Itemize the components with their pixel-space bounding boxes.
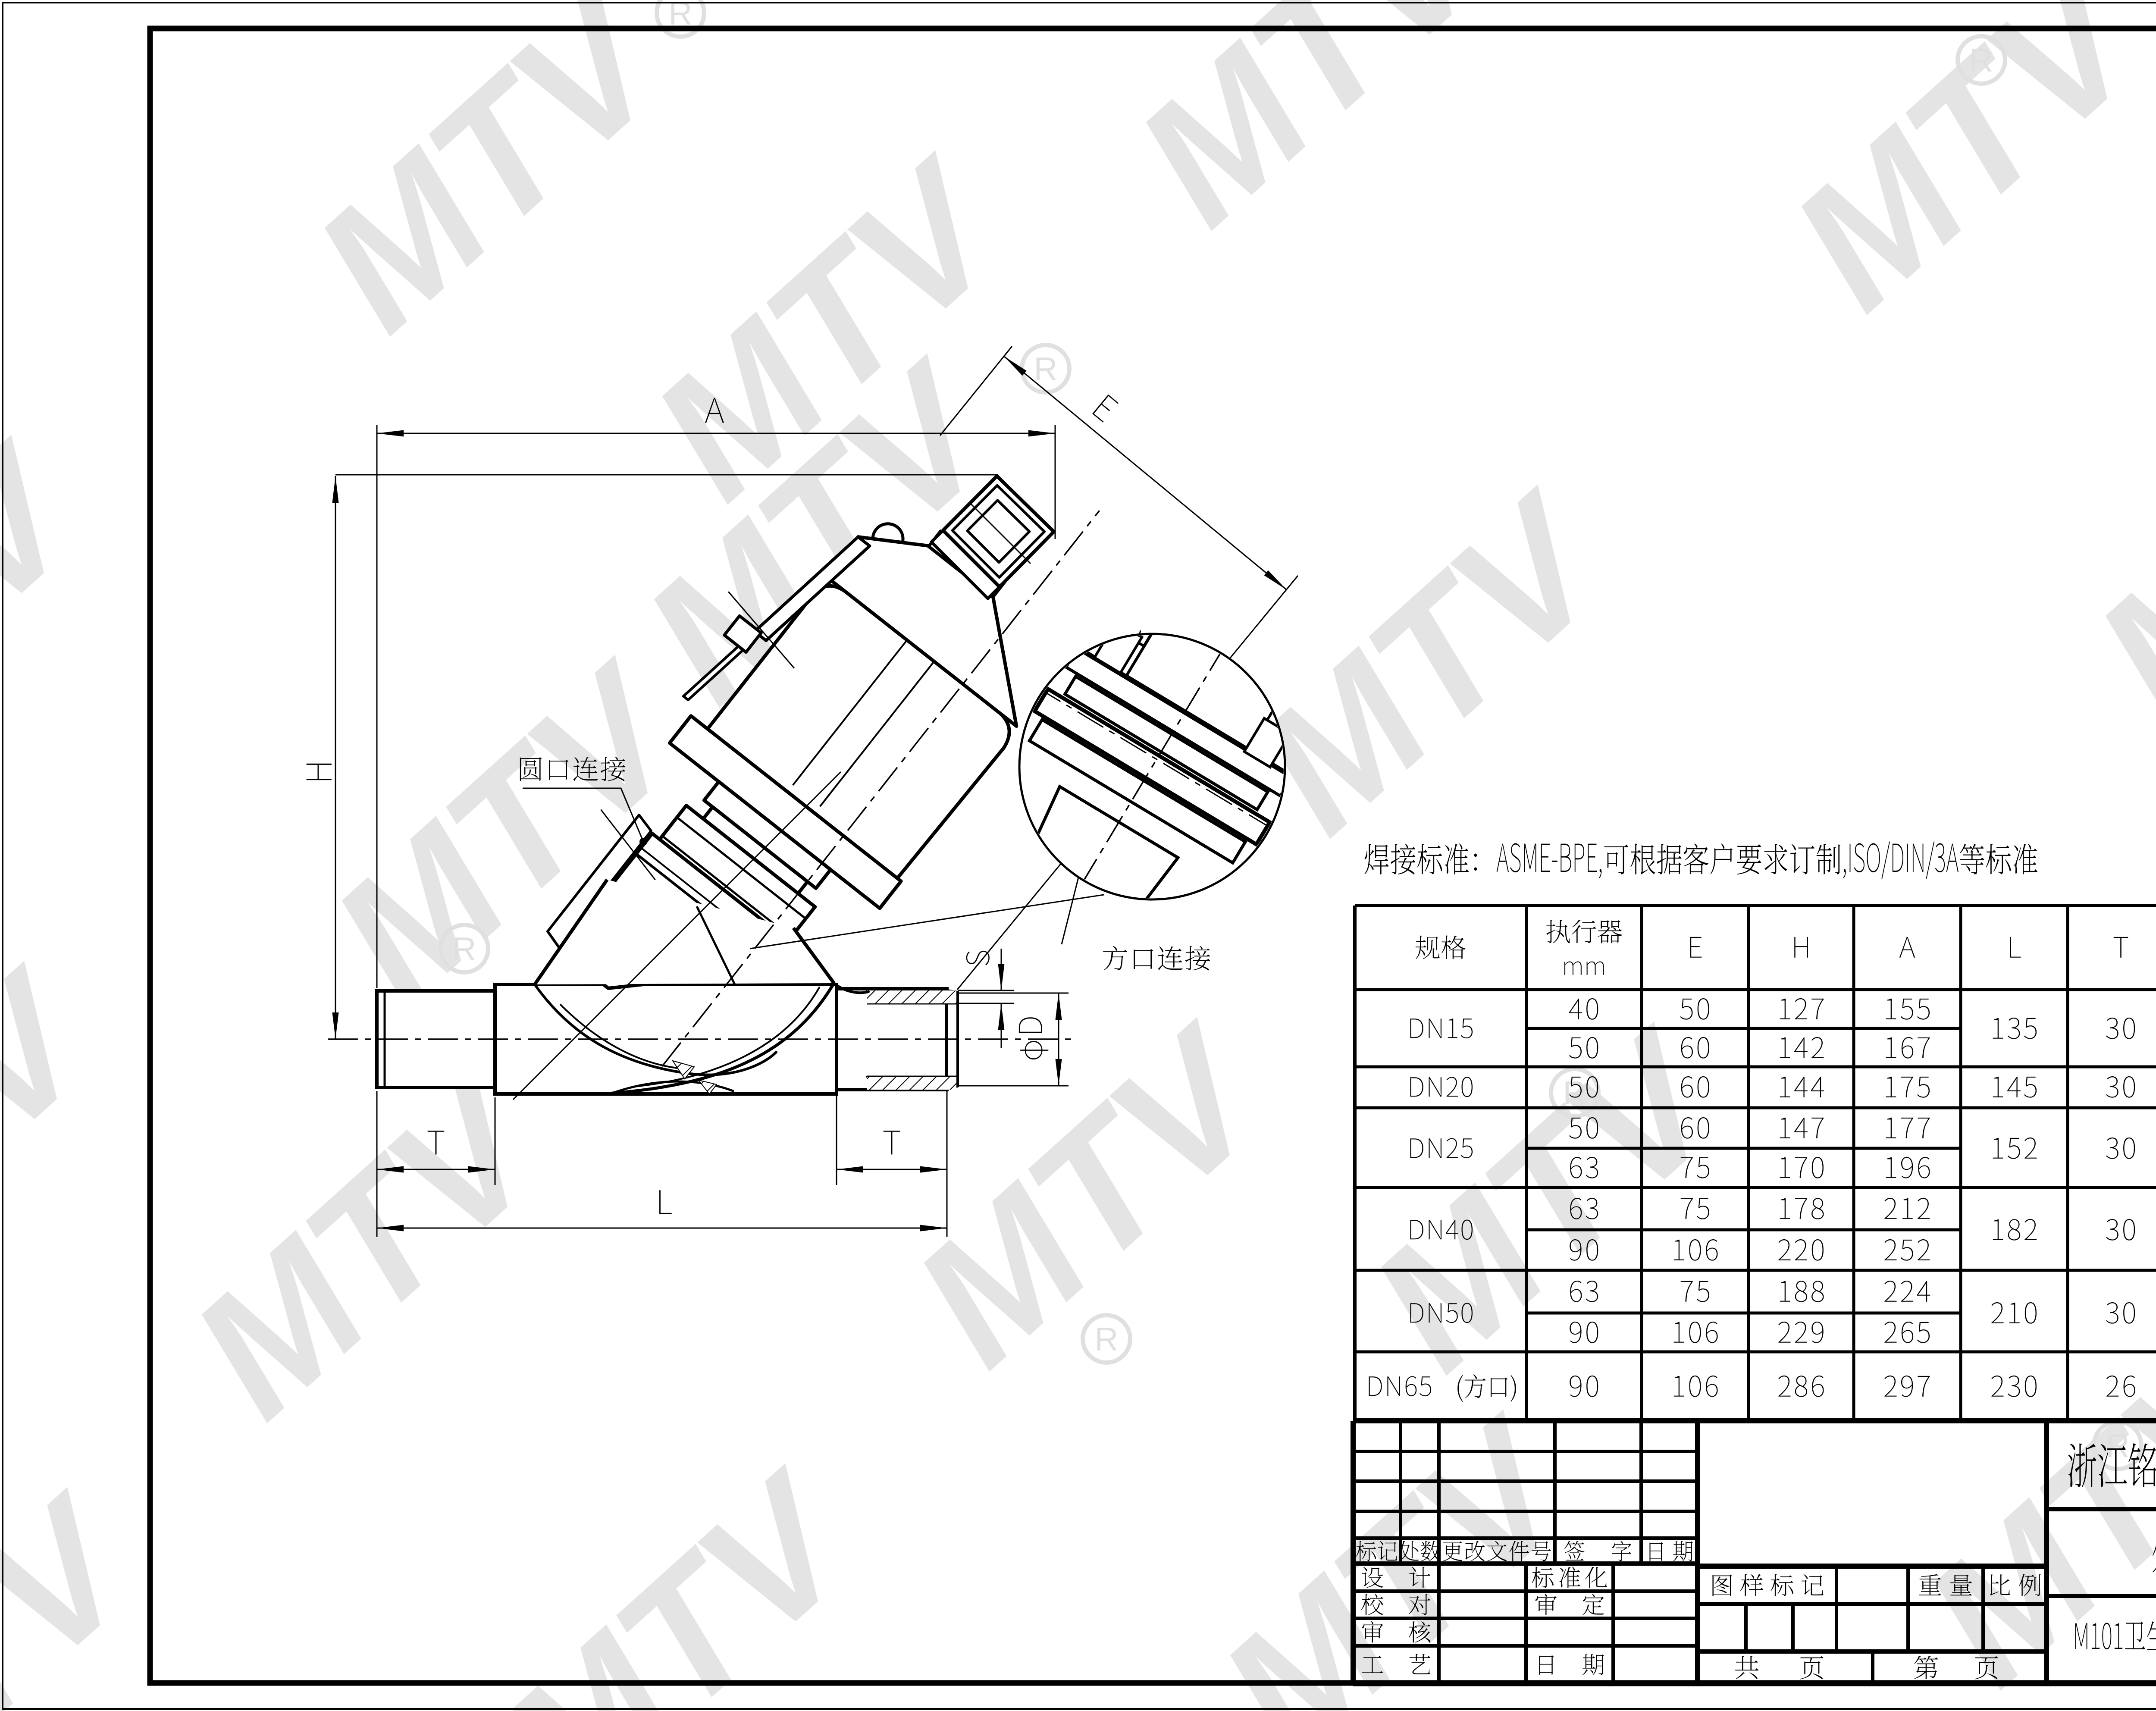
svg-text:R: R [1095,1321,1119,1358]
svg-text:R: R [2106,1428,2130,1464]
svg-text:R: R [1970,42,1993,79]
svg-text:R: R [1563,1075,1587,1112]
svg-text:R: R [1034,351,1058,388]
svg-text:R: R [453,931,476,968]
